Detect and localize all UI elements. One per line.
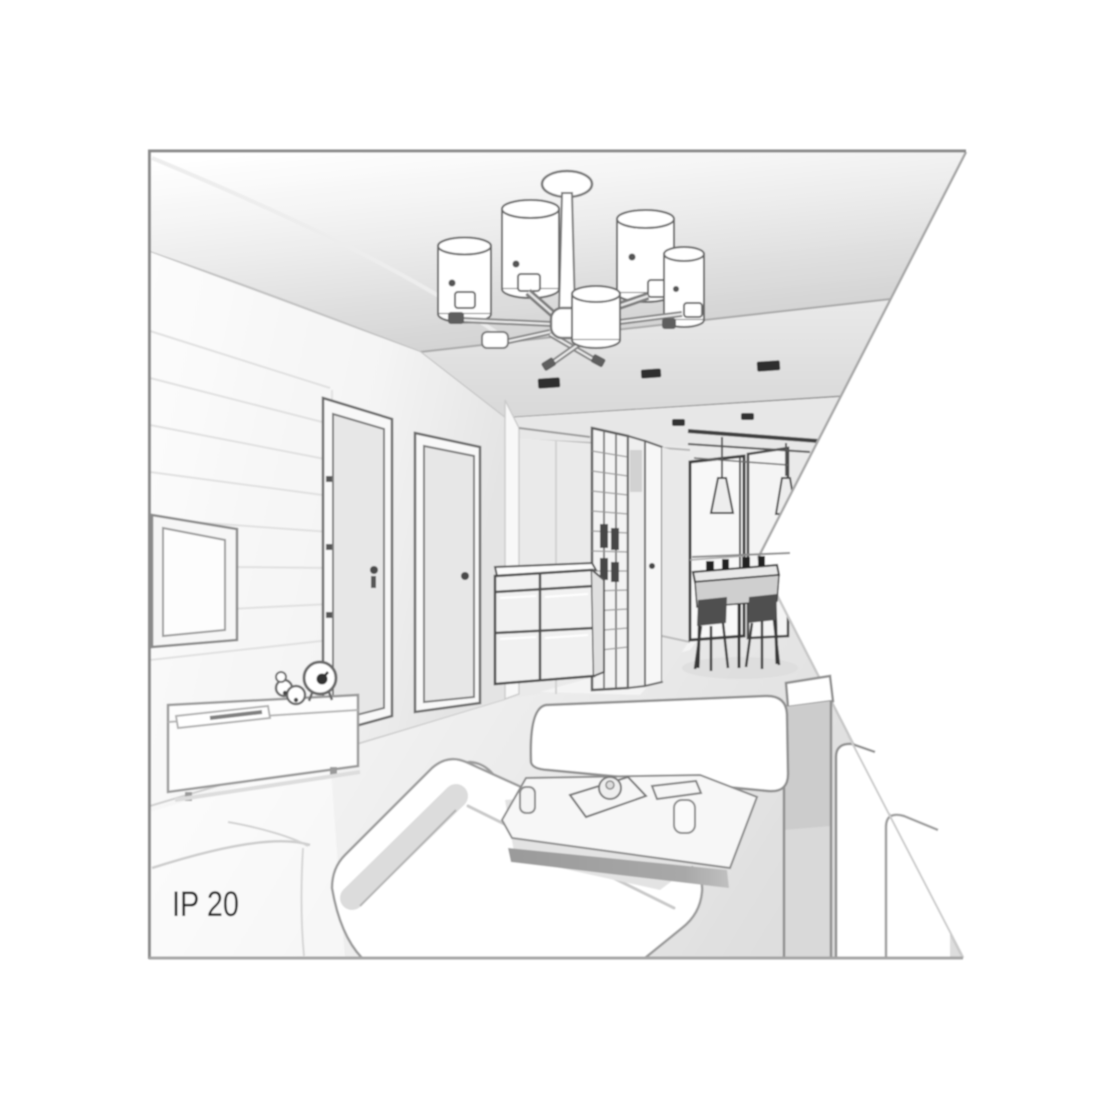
svg-text:IP 20: IP 20 xyxy=(172,885,239,924)
